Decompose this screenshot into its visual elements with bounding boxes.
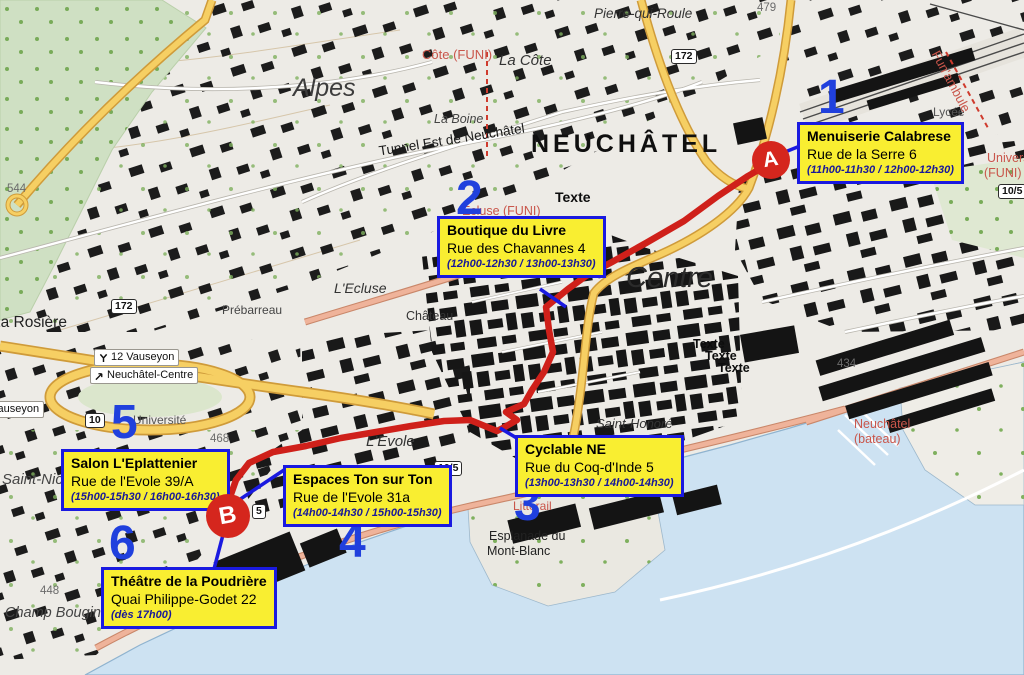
- transit-stop-label: Vauseyon: [0, 402, 39, 417]
- stop-info-box-3: Cyclable NE Rue du Coq-d'Inde 5 (13h00-1…: [515, 435, 684, 497]
- stop-number-1: 1: [818, 74, 845, 122]
- stop-name: Théâtre de la Poudrière: [111, 573, 267, 591]
- road-sign-172: 172: [111, 299, 137, 314]
- stop-address: Quai Philippe-Godet 22: [111, 591, 267, 609]
- stop-info-box-4: Espaces Ton sur Ton Rue de l'Evole 31a (…: [283, 465, 452, 527]
- road-sign-10-5: 10/5: [998, 184, 1024, 199]
- stop-number-5: 5: [111, 399, 138, 447]
- stop-info-box-6: Théâtre de la Poudrière Quai Philippe-Go…: [101, 567, 277, 629]
- stop-times: (15h00-15h30 / 16h00-16h30): [71, 490, 220, 504]
- stop-name: Boutique du Livre: [447, 222, 596, 240]
- stop-times: (dès 17h00): [111, 608, 267, 622]
- stop-times: (11h00-11h30 / 12h00-12h30): [807, 163, 954, 177]
- transit-stop-neuchatel-centre: Neuchâtel-Centre: [90, 367, 198, 384]
- road-sign-10: 10: [85, 413, 105, 428]
- stop-name: Espaces Ton sur Ton: [293, 471, 442, 489]
- stop-times: (12h00-12h30 / 13h00-13h30): [447, 257, 596, 271]
- stop-name: Menuiserie Calabrese: [807, 128, 954, 146]
- route-marker-end: B: [206, 494, 250, 538]
- transit-stop-12-vauseyon: 12 Vauseyon: [94, 349, 179, 366]
- marker-letter: A: [761, 147, 780, 173]
- transit-stop-label: Neuchâtel-Centre: [107, 368, 193, 383]
- stop-address: Rue de la Serre 6: [807, 146, 954, 164]
- tram-fork-icon: [99, 353, 108, 363]
- map-canvas: Pierre-qui-Roule Côte (FUNI) La Côte Alp…: [0, 0, 1024, 675]
- transit-stop-vauseyon: Vauseyon: [0, 401, 44, 418]
- marker-letter: B: [217, 501, 239, 532]
- stop-info-box-5: Salon L'Eplattenier Rue de l'Evole 39/A …: [61, 449, 230, 511]
- stop-info-box-1: Menuiserie Calabrese Rue de la Serre 6 (…: [797, 122, 964, 184]
- stop-name: Salon L'Eplattenier: [71, 455, 220, 473]
- stop-times: (14h00-14h30 / 15h00-15h30): [293, 506, 442, 520]
- transit-stop-label: 12 Vauseyon: [111, 350, 174, 365]
- stop-address: Rue des Chavannes 4: [447, 240, 596, 258]
- route-marker-start: A: [752, 141, 790, 179]
- stop-address: Rue de l'Evole 31a: [293, 489, 442, 507]
- stop-times: (13h00-13h30 / 14h00-14h30): [525, 476, 674, 490]
- direction-arrow-icon: [95, 371, 104, 381]
- stop-number-6: 6: [109, 520, 136, 568]
- road-sign-5: 5: [252, 504, 266, 519]
- stop-address: Rue de l'Evole 39/A: [71, 473, 220, 491]
- stop-name: Cyclable NE: [525, 441, 674, 459]
- stop-info-box-2: Boutique du Livre Rue des Chavannes 4 (1…: [437, 216, 606, 278]
- road-sign-172: 172: [671, 49, 697, 64]
- stop-address: Rue du Coq-d'Inde 5: [525, 459, 674, 477]
